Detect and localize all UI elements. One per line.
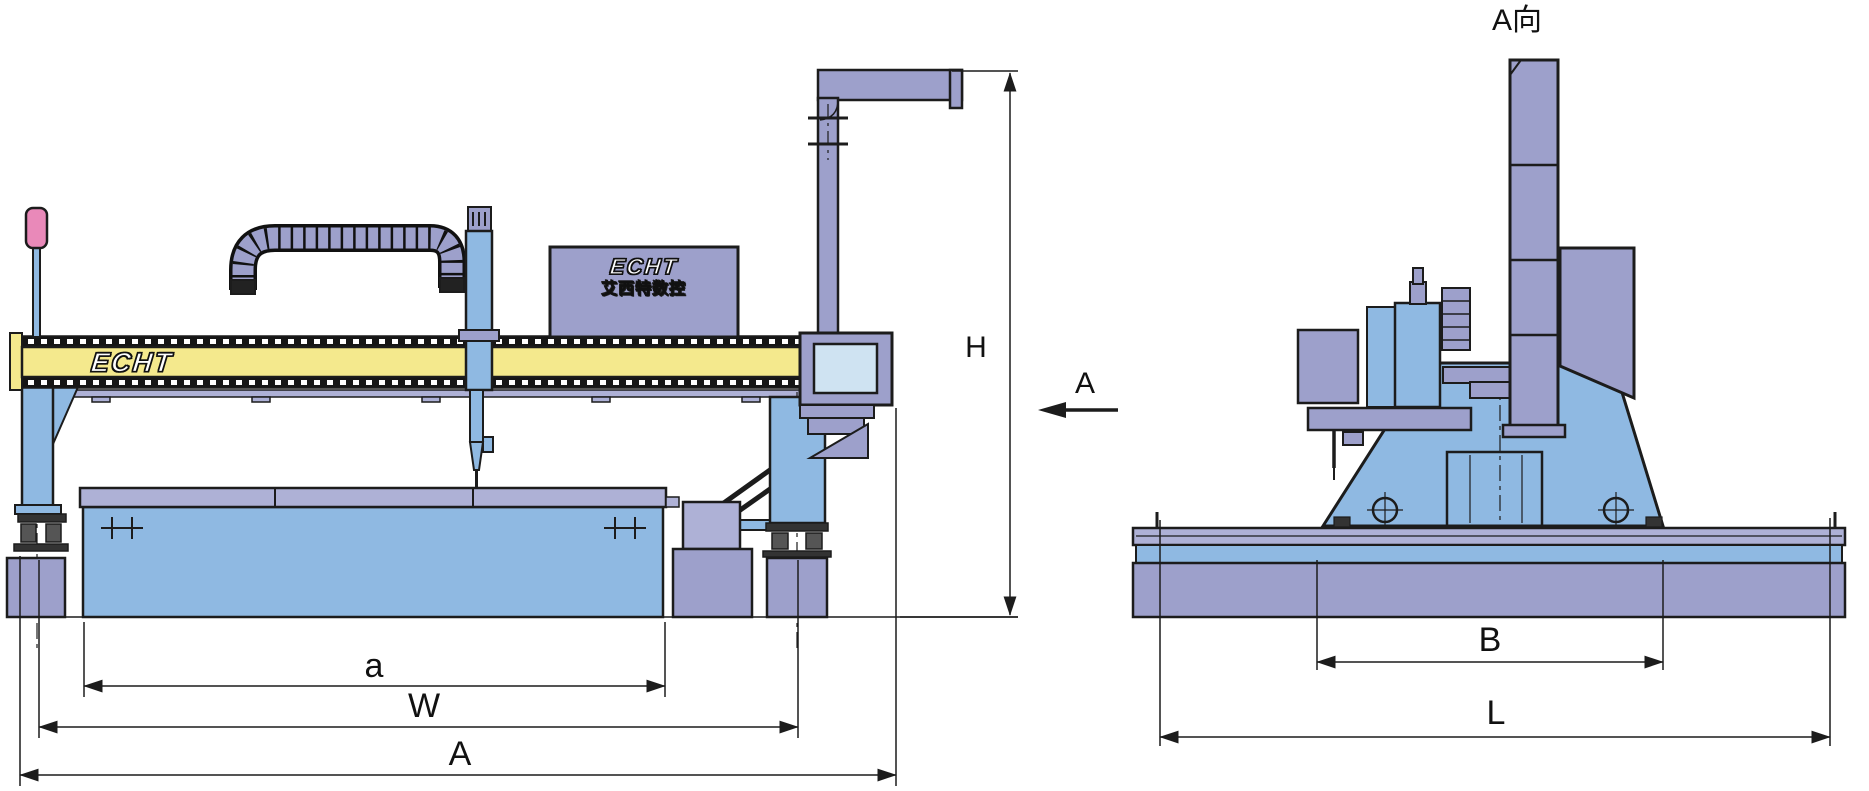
frame-foot-left xyxy=(1334,517,1350,527)
front-view xyxy=(7,70,1118,786)
machinery-cluster xyxy=(1367,268,1515,407)
cutting-torch xyxy=(470,390,493,487)
signal-lamp xyxy=(26,208,47,337)
carriage-plate xyxy=(459,330,499,341)
drag-chain xyxy=(231,238,464,294)
panel-screen xyxy=(814,344,877,393)
support-shelf xyxy=(1443,367,1513,383)
signal-lamp-cap xyxy=(26,208,47,248)
motor-stack-2 xyxy=(1413,268,1423,284)
left-leg-column xyxy=(22,387,53,508)
side-torch-holder xyxy=(1343,432,1363,445)
left-wheel-truck xyxy=(14,514,68,551)
exhaust-duct xyxy=(808,70,962,333)
dimension-l-label: L xyxy=(1487,696,1506,730)
dimension-w-label: W xyxy=(408,689,440,723)
dimension-h xyxy=(900,71,1018,617)
duct-arm-lip xyxy=(950,70,962,108)
slide-housing xyxy=(1395,303,1440,407)
carriage-mast xyxy=(466,231,492,390)
motor-stack-1 xyxy=(1410,282,1426,304)
table-body xyxy=(83,507,663,617)
side-duct-flange xyxy=(1503,425,1565,437)
base-blue-band xyxy=(1136,545,1842,563)
table-top-plate xyxy=(80,488,666,507)
side-cross-bar xyxy=(1308,408,1471,430)
dimension-a-label: a xyxy=(365,649,384,683)
cabinet-logo: ECHT xyxy=(609,256,679,278)
torch-carriage xyxy=(459,207,499,487)
duct-arm xyxy=(818,70,962,100)
table-end-cap xyxy=(666,497,679,507)
mid-support-box xyxy=(683,502,740,549)
frame-foot-right xyxy=(1646,517,1662,527)
gantry-rail xyxy=(68,390,815,397)
cross-slide-column xyxy=(1367,307,1397,407)
left-leg-flange xyxy=(15,505,61,514)
mid-foundation-block xyxy=(673,549,752,617)
side-base xyxy=(1133,512,1845,617)
dimension-h-label: H xyxy=(965,333,987,363)
side-duct-column xyxy=(1503,60,1565,437)
cutting-table xyxy=(80,488,679,617)
beam-end-cap xyxy=(10,333,22,390)
right-foundation-block xyxy=(767,558,827,617)
side-view-title: A向 xyxy=(1492,6,1542,36)
duct-connector xyxy=(1470,382,1515,398)
left-foundation-block xyxy=(7,558,65,617)
side-torch-box xyxy=(1298,330,1358,403)
dimension-overall-a-label: A xyxy=(449,737,472,771)
machine-drawing xyxy=(0,0,1869,791)
diagram-canvas: ECHT ECHT 艾西特数控 a W A H A A向 B L xyxy=(0,0,1869,791)
view-direction-label: A xyxy=(1075,369,1095,399)
panel-bracket xyxy=(800,405,874,418)
cabinet-subtitle: 艾西特数控 xyxy=(601,282,686,298)
view-direction-arrow xyxy=(1038,402,1118,418)
beam-logo: ECHT xyxy=(90,350,174,377)
signal-pole xyxy=(33,245,40,337)
right-wheel-truck xyxy=(763,523,831,557)
dimension-b-label: B xyxy=(1479,623,1502,657)
left-leg xyxy=(7,383,78,648)
left-leg-gusset xyxy=(53,387,78,444)
base-body xyxy=(1133,563,1845,617)
